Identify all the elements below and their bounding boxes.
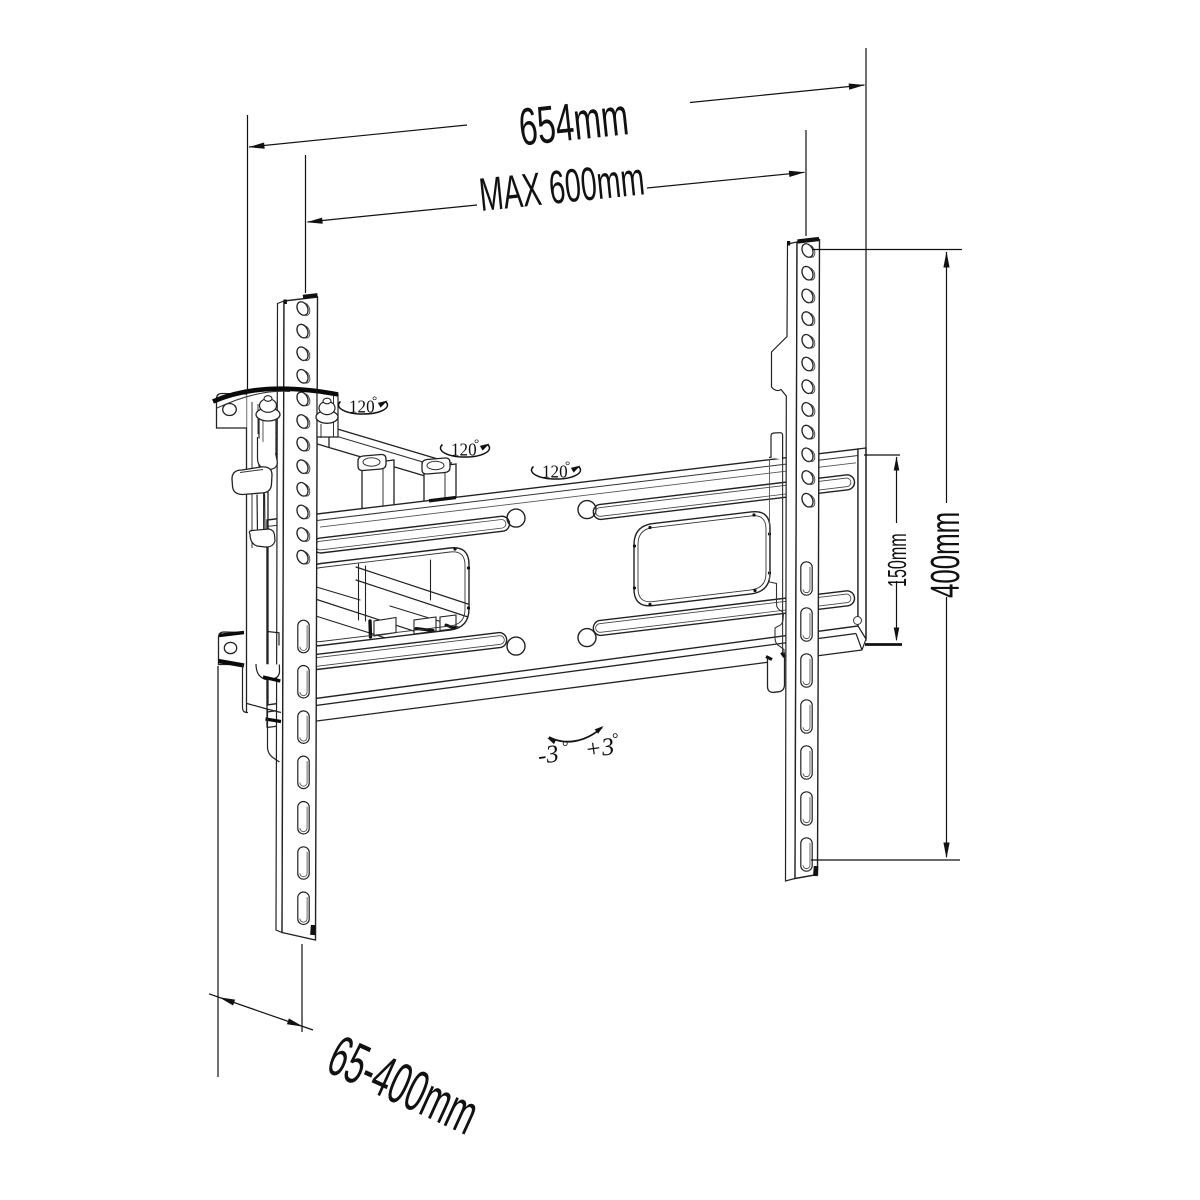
svg-text:°: °	[562, 739, 568, 756]
svg-text:400mm: 400mm	[923, 512, 968, 598]
svg-text:+3: +3	[583, 733, 616, 764]
svg-text:°: °	[565, 458, 570, 473]
svg-text:120: 120	[542, 461, 568, 482]
svg-text:-3: -3	[536, 740, 560, 770]
svg-text:654mm: 654mm	[516, 87, 631, 157]
svg-text:°: °	[612, 731, 618, 748]
svg-text:°: °	[372, 393, 377, 408]
svg-text:120: 120	[451, 439, 477, 460]
svg-text:150mm: 150mm	[882, 533, 912, 587]
svg-text:°: °	[474, 436, 479, 451]
svg-text:120: 120	[349, 396, 375, 417]
